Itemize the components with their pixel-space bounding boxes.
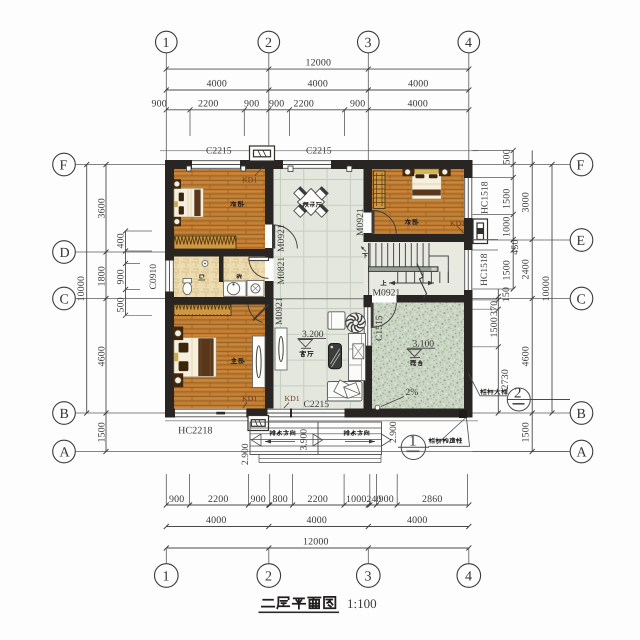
svg-text:1500: 1500 (520, 422, 531, 443)
svg-text:HC1518: HC1518 (479, 253, 490, 286)
svg-text:4600: 4600 (96, 346, 107, 367)
svg-text:1500: 1500 (501, 188, 512, 209)
svg-text:E: E (577, 234, 586, 249)
svg-text:370: 370 (489, 301, 500, 316)
svg-text:1500: 1500 (501, 260, 512, 281)
svg-text:4: 4 (465, 36, 472, 51)
svg-text:4000: 4000 (408, 79, 429, 90)
svg-text:2.900: 2.900 (240, 443, 251, 465)
svg-text:400: 400 (116, 233, 127, 248)
svg-text:2860: 2860 (422, 494, 443, 505)
svg-text:M0821: M0821 (276, 257, 287, 285)
svg-text:1000: 1000 (501, 216, 512, 237)
svg-text:KD1: KD1 (242, 176, 257, 185)
svg-text:2400: 2400 (520, 259, 531, 280)
svg-text:HC1518: HC1518 (480, 181, 491, 214)
svg-text:4600: 4600 (520, 346, 531, 367)
svg-text:900: 900 (152, 98, 167, 109)
svg-text:2: 2 (265, 36, 272, 51)
svg-text:3: 3 (365, 36, 372, 51)
svg-text:500: 500 (501, 149, 512, 164)
svg-text:2.900: 2.900 (388, 421, 399, 443)
svg-text:M0921: M0921 (373, 288, 401, 299)
svg-text:M0921: M0921 (355, 208, 366, 236)
svg-text:2%: 2% (406, 387, 419, 398)
svg-text:1000: 1000 (346, 494, 367, 505)
svg-text:12000: 12000 (306, 58, 332, 69)
svg-text:C2215: C2215 (306, 146, 332, 157)
svg-text:4000: 4000 (408, 98, 429, 109)
svg-text:1: 1 (163, 570, 170, 585)
svg-text:4000: 4000 (307, 515, 328, 526)
svg-text:450: 450 (510, 239, 521, 254)
svg-text:2200: 2200 (294, 98, 315, 109)
svg-text:C2215: C2215 (206, 146, 232, 157)
svg-text:2: 2 (265, 570, 272, 585)
svg-text:M0921: M0921 (274, 297, 285, 325)
svg-text:900: 900 (251, 494, 266, 505)
svg-text:B: B (577, 407, 586, 422)
svg-text:KD1: KD1 (285, 394, 300, 403)
svg-text:500: 500 (116, 297, 127, 312)
svg-text:C: C (60, 293, 69, 308)
svg-text:C: C (577, 293, 586, 308)
svg-text:2: 2 (514, 386, 522, 402)
svg-text:4000: 4000 (407, 515, 428, 526)
svg-text:1800: 1800 (96, 266, 107, 287)
svg-text:2200: 2200 (208, 494, 229, 505)
svg-text:C0910: C0910 (148, 264, 159, 290)
svg-text:10000: 10000 (76, 276, 87, 302)
svg-text:3600: 3600 (96, 198, 107, 219)
svg-text:4000: 4000 (308, 79, 329, 90)
svg-text:3: 3 (365, 570, 372, 585)
svg-text:D: D (60, 246, 70, 261)
svg-text:900: 900 (169, 494, 184, 505)
svg-text:2730: 2730 (500, 369, 511, 390)
svg-text:1500: 1500 (96, 422, 107, 443)
svg-text:A: A (577, 446, 588, 461)
svg-text:4000: 4000 (207, 79, 228, 90)
svg-text:F: F (60, 159, 68, 174)
svg-text:2200: 2200 (308, 494, 329, 505)
svg-text:B: B (60, 407, 69, 422)
svg-text:1: 1 (163, 36, 170, 51)
svg-text:3000: 3000 (520, 192, 531, 213)
svg-text:900: 900 (350, 98, 365, 109)
svg-text:10000: 10000 (541, 276, 552, 302)
svg-text:4: 4 (465, 570, 472, 585)
svg-text:2200: 2200 (198, 98, 219, 109)
svg-text:C2215: C2215 (304, 399, 330, 410)
svg-text:F: F (577, 159, 585, 174)
svg-text:4000: 4000 (206, 515, 227, 526)
svg-text:M0921: M0921 (276, 224, 287, 252)
svg-text:HC2218: HC2218 (178, 426, 213, 437)
svg-text:1:100: 1:100 (347, 596, 377, 611)
svg-text:1500: 1500 (489, 317, 500, 338)
svg-text:3.900: 3.900 (298, 429, 309, 451)
svg-text:A: A (60, 446, 71, 461)
svg-text:C1515: C1515 (374, 315, 385, 341)
svg-text:KD1: KD1 (242, 394, 257, 403)
svg-text:1: 1 (409, 434, 417, 450)
svg-text:800: 800 (273, 494, 288, 505)
svg-text:12000: 12000 (303, 537, 329, 548)
svg-text:900: 900 (379, 494, 394, 505)
svg-text:900: 900 (116, 269, 127, 284)
